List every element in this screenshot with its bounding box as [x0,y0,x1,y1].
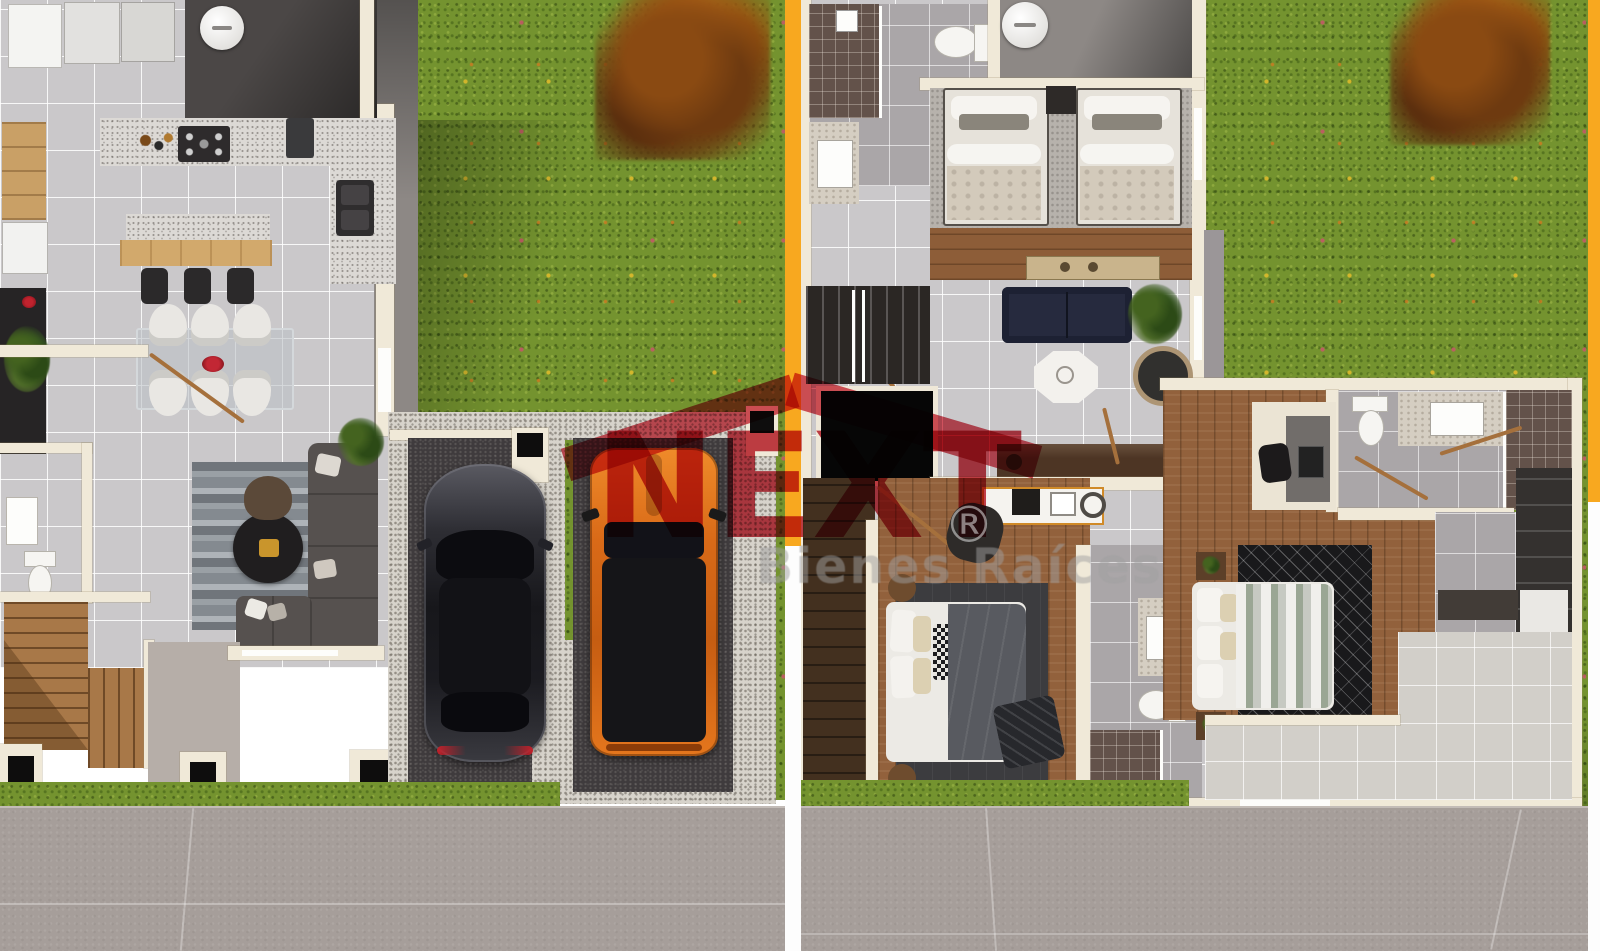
stair-rail [852,290,855,382]
shower-head [836,10,858,32]
accent-pillow [959,114,1029,130]
striped-duvet [1236,584,1332,708]
sidewalk-joint [0,903,790,905]
window [378,348,391,412]
washer [8,4,62,68]
patio-wall [360,0,374,118]
nightstand [1046,86,1076,114]
dresser-knob [1060,262,1070,272]
pillow-beige [913,616,931,652]
laptop [1298,446,1324,478]
stair-rail [862,290,865,382]
sink-basin [341,210,369,230]
sedan-windshield [436,530,534,582]
wing-wall-top [1160,378,1582,390]
gold-tray [259,539,279,557]
suv-rear [606,744,702,751]
window [1194,296,1202,360]
tail-lights [437,746,533,755]
desk-chair [1258,442,1293,484]
fridge [2,222,48,274]
bar-stool [227,268,254,304]
divider-white [785,546,801,951]
powder-vanity [6,497,38,545]
sidewalk-joint [800,933,1590,935]
throw-blanket [992,694,1066,769]
table-decor [1056,366,1074,384]
blanket-roll [947,144,1041,164]
sedan-rear-window [441,692,529,732]
plant-small [1202,556,1220,574]
closet-bench [1438,590,1518,620]
terrace [1398,632,1572,800]
bar-stool [184,268,211,304]
duvet [1080,166,1174,220]
dining-chair [233,304,271,346]
tree [1390,0,1550,145]
pillow [313,558,338,579]
sofa-split [1066,292,1068,338]
suv-roof [602,558,706,742]
staircase [4,602,88,750]
terrace [1205,725,1400,800]
tree [595,0,770,160]
staircase-upper [88,668,144,768]
window [242,650,338,656]
floorplan-render: NEXT ® Bienes Raíces [0,0,1600,951]
wall [0,592,150,602]
stairwell [806,286,930,384]
dresser-knob [1088,262,1098,272]
pantry-cabinet [2,122,46,220]
sink-basin [341,185,369,205]
island-wood-top [120,240,272,266]
plant [1128,284,1182,344]
wall [1205,715,1400,725]
heater-handle [1014,23,1036,27]
centerpiece [202,356,224,372]
duvet [947,166,1041,220]
plant [338,418,384,466]
stove [178,126,230,162]
plant [4,326,50,392]
accent-pillow [1092,114,1162,130]
shower-glass [1503,392,1506,508]
sofa-sectional [308,443,378,653]
desk-clock [1080,492,1106,518]
dining-chair [191,304,229,346]
coffee-set [136,130,174,156]
blanket-roll [1080,144,1174,164]
flower-red [22,296,36,308]
island-counter [126,214,270,240]
sink [817,140,853,188]
armchair [244,476,292,520]
dryer [121,2,175,62]
post-cap [517,433,543,457]
toilet-bowl [1358,410,1384,446]
edge-white [1588,502,1600,951]
picture-frame [1050,492,1076,516]
watermark-tagline: Bienes Raíces [756,542,1163,591]
range-hood [286,118,314,158]
twin-bed [943,88,1049,226]
toilet-bowl [934,26,978,58]
pillar [8,756,34,784]
sedan-roof [439,578,531,696]
heater-handle [212,26,232,30]
wall [0,345,148,357]
washer [64,2,120,64]
wall [0,443,92,453]
pillow [1197,664,1223,698]
bar-stool [141,268,168,304]
closet-box [1520,590,1568,632]
pillow-beige [913,658,931,694]
window [1194,108,1202,180]
wall [82,443,92,603]
twin-bed [1076,88,1182,226]
dining-chair [149,304,187,346]
shower-glass [879,6,882,118]
sink [1430,402,1484,436]
edge-orange [1588,0,1600,502]
master-bed [1192,582,1334,710]
car-sedan [424,464,546,762]
